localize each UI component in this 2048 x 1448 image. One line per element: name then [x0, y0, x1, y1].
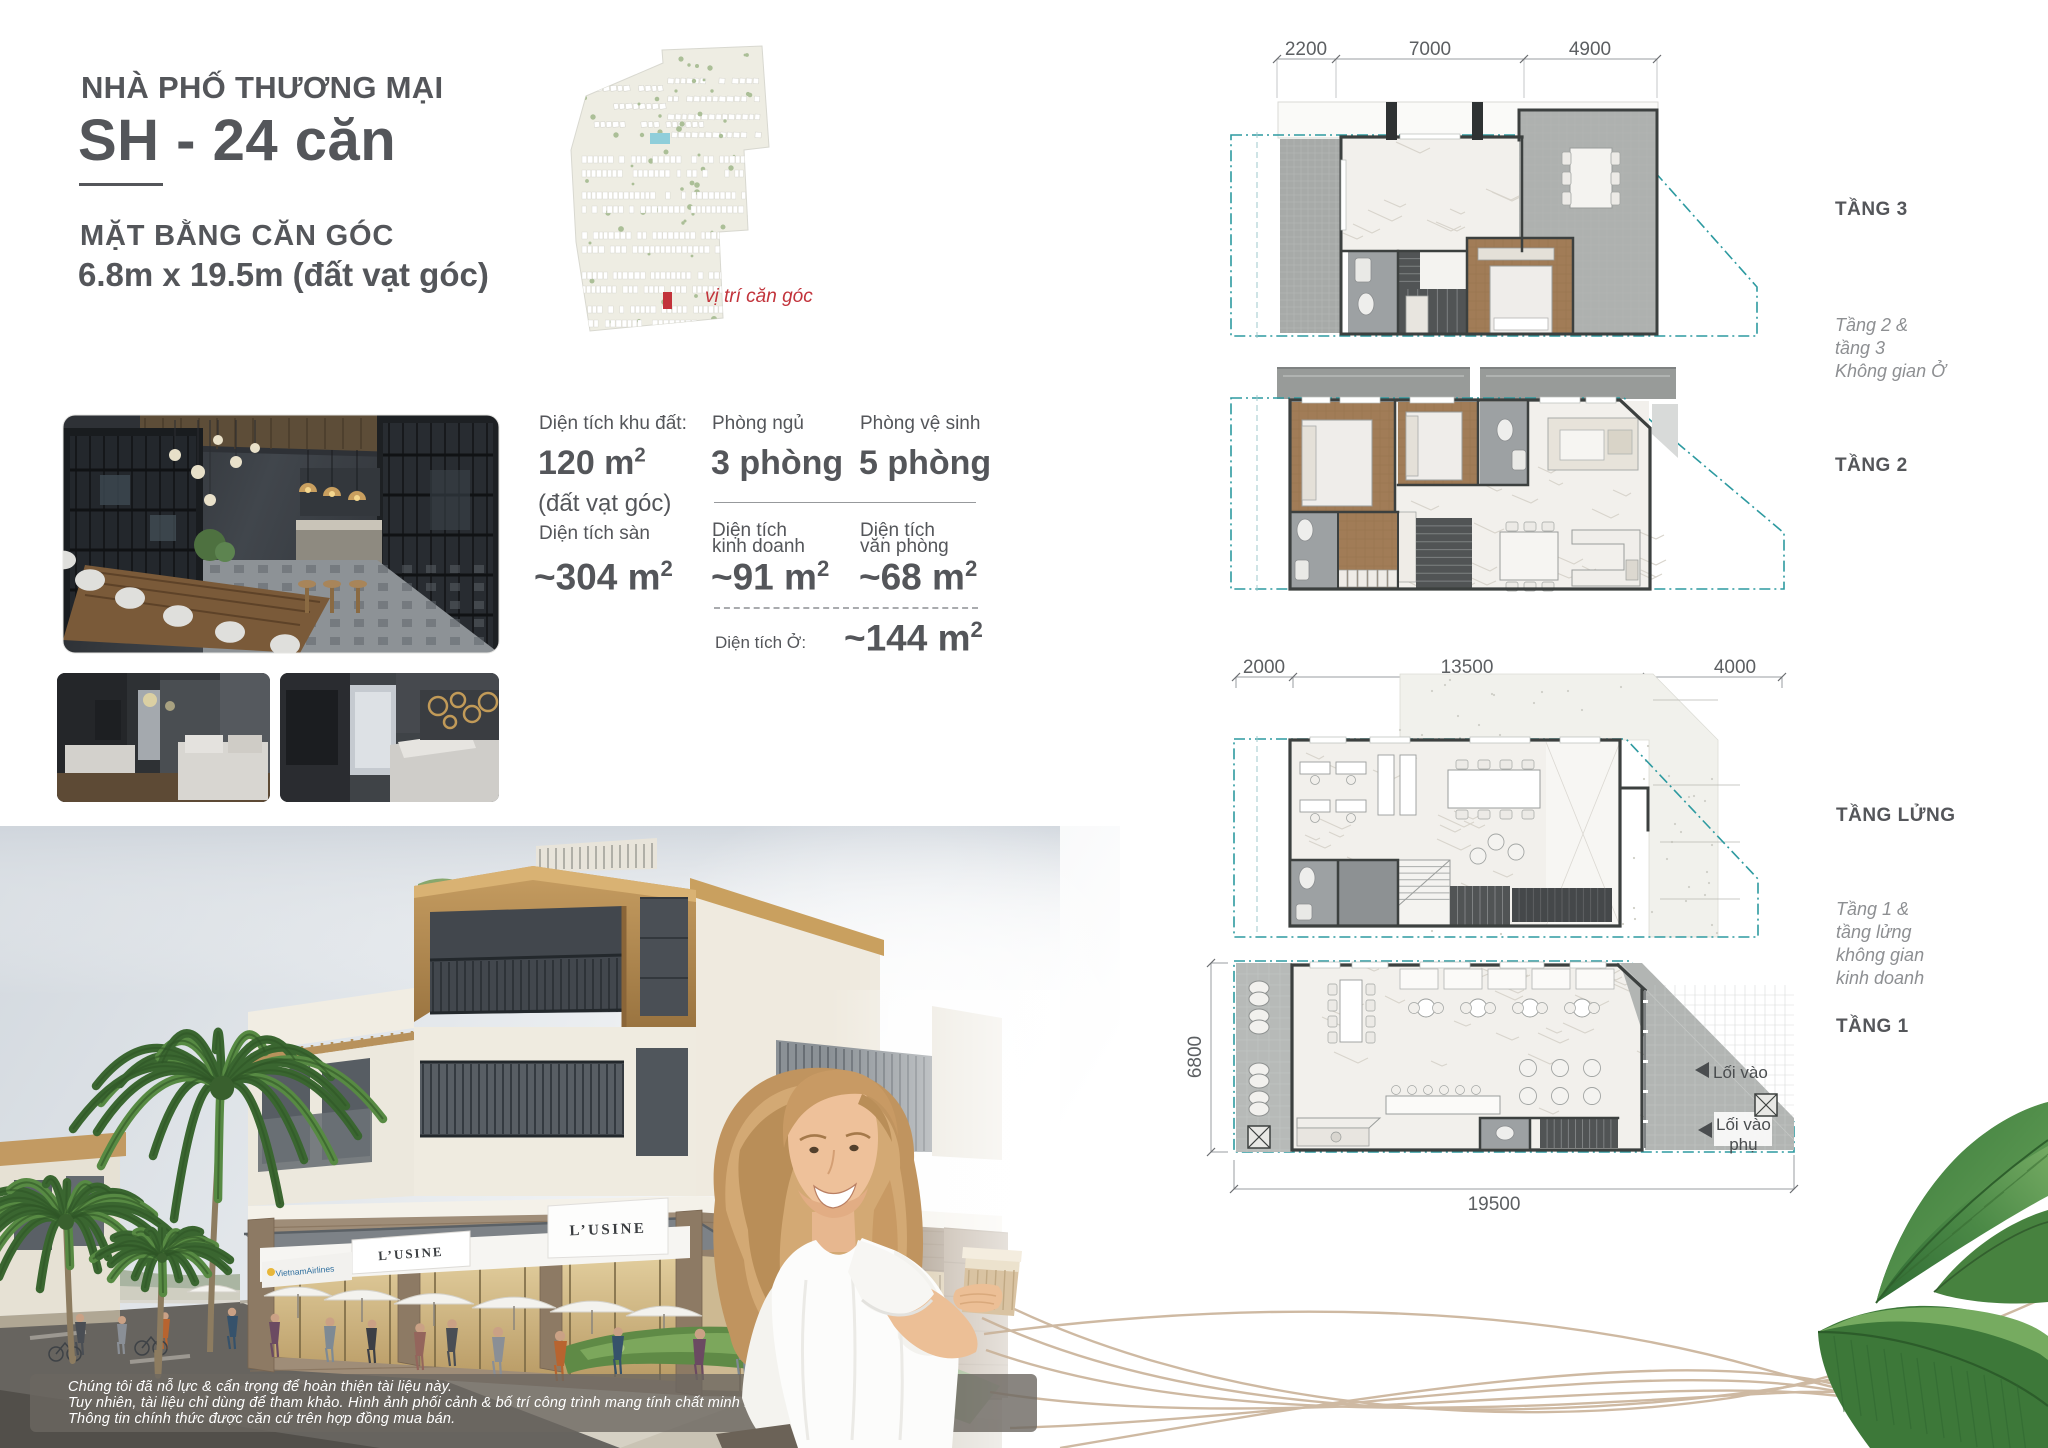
- svg-text:Thông tin chính thức được căn: Thông tin chính thức được căn cứ trên hợ…: [68, 1411, 455, 1427]
- svg-text:L’USINE: L’USINE: [569, 1221, 646, 1240]
- svg-text:Chúng tôi đã nỗ lực & cẩn trọn: Chúng tôi đã nỗ lực & cẩn trọng để hoàn …: [68, 1378, 452, 1395]
